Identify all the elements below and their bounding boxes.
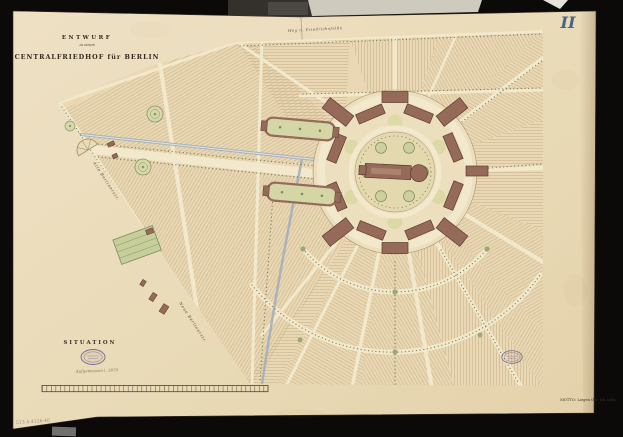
archive-stamp-left [81,350,105,365]
title-line-2: zu einem [78,43,95,47]
section-label: SITUATION [63,340,116,346]
garden-circle [65,121,75,131]
mount-tab [52,427,76,437]
paper-stain [551,70,579,90]
title-line-3: CENTRALFRIEDHOF für BERLIN [15,53,160,61]
plate-number: II [560,13,576,32]
garden-circle [147,106,163,122]
archive-stamp-right [502,351,522,364]
motto-text: MOTTO: Liegen thu' ich nicht [560,398,616,402]
scale-bar [42,386,268,392]
title-line-1: ENTWURF [62,35,112,41]
garden-circle [135,159,151,175]
archival-map-photo: ENTWURF zu einem CENTRALFRIEDHOF für BER… [0,0,623,437]
